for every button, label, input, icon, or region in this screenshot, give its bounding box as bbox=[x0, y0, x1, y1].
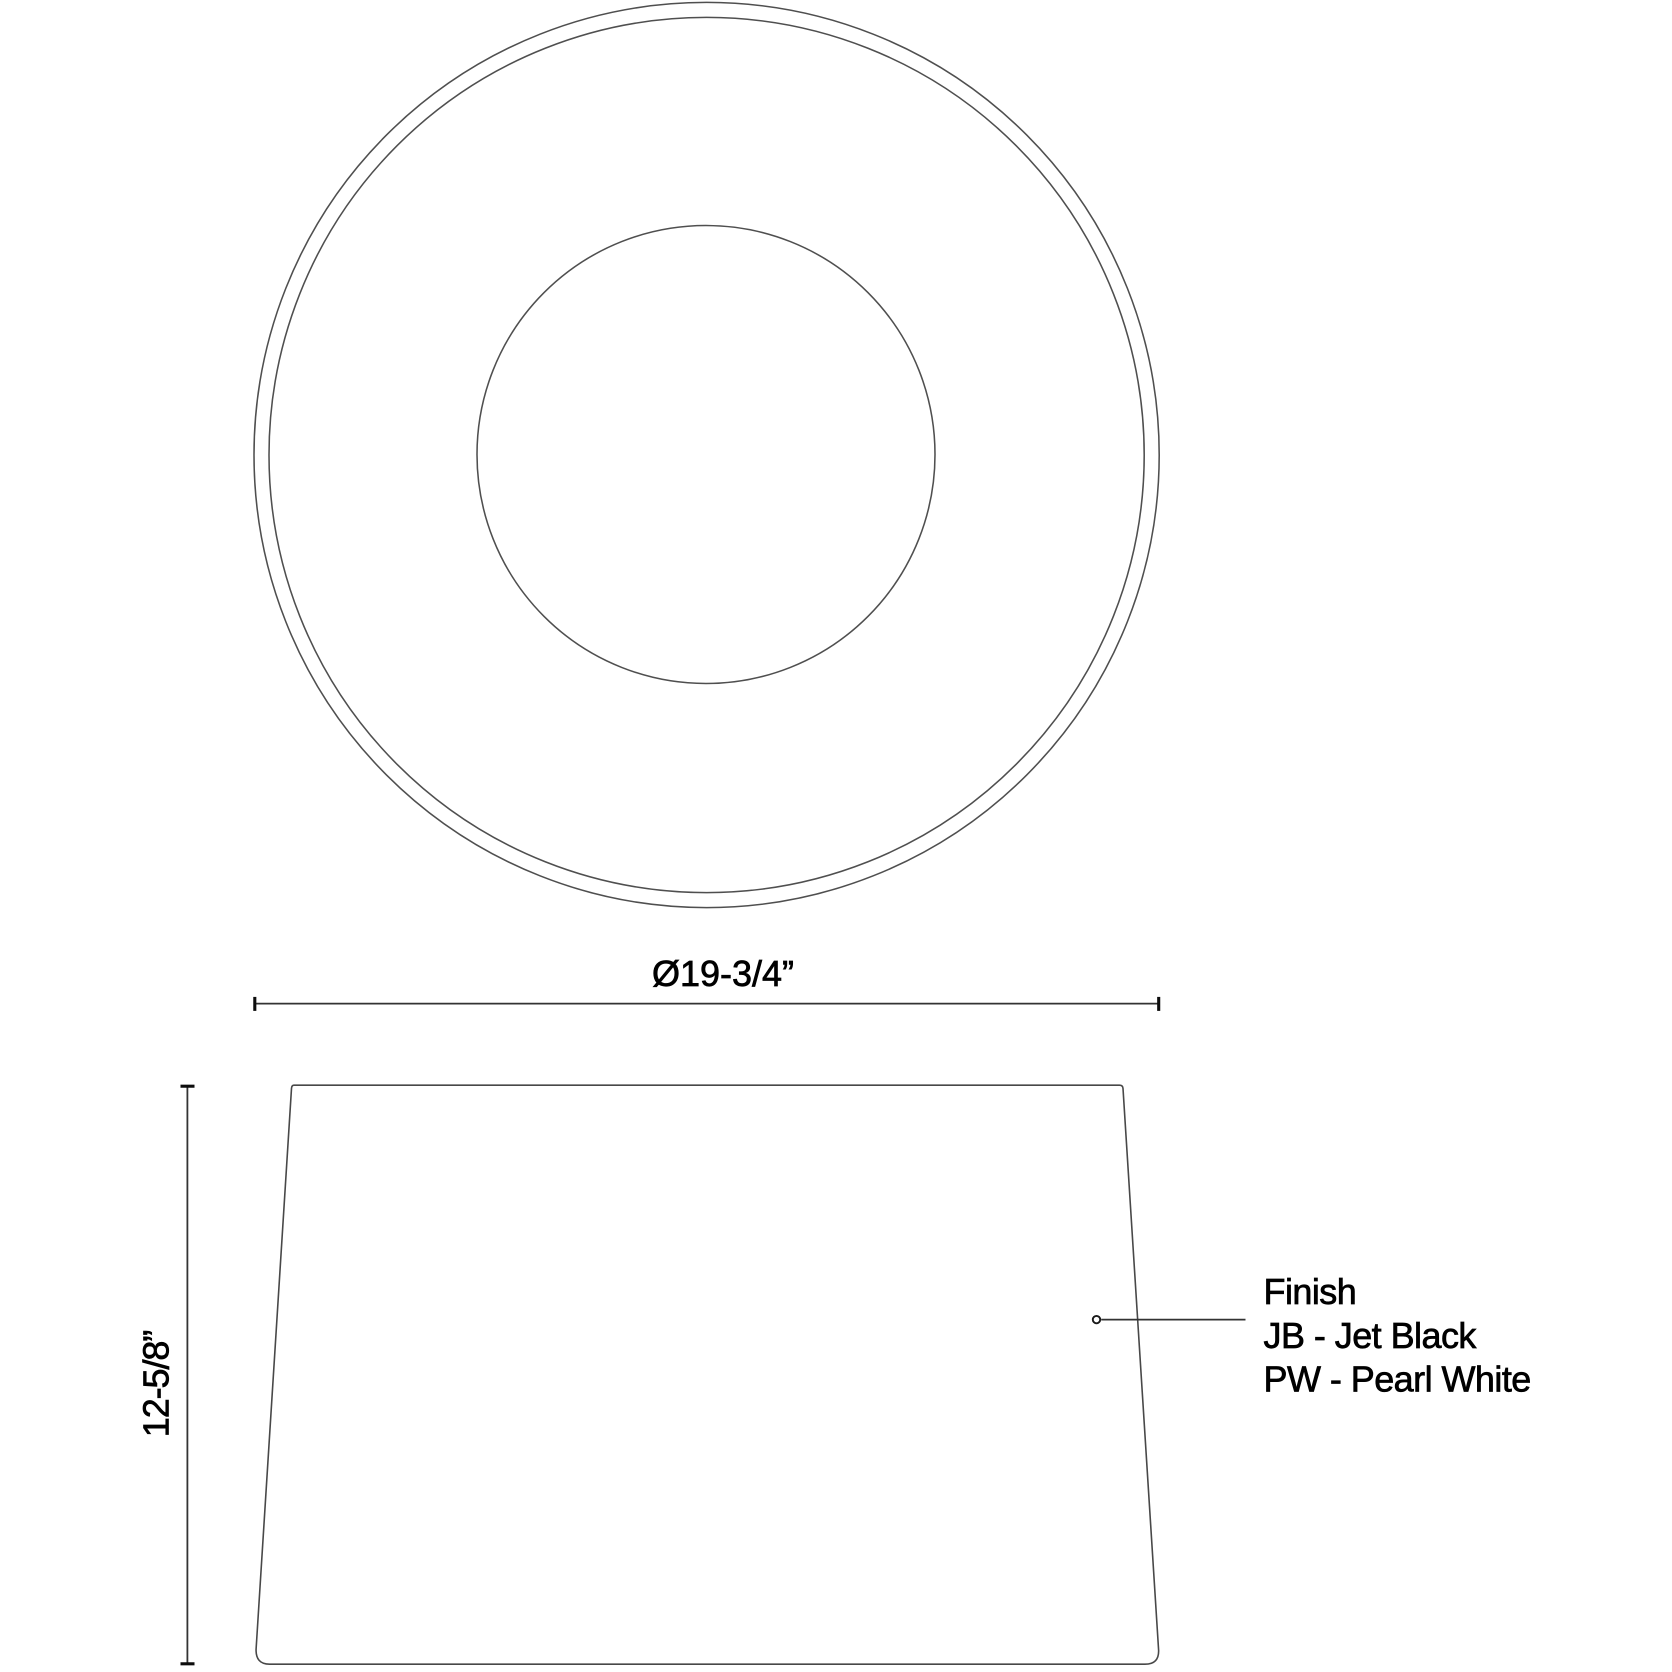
svg-text:Finish: Finish bbox=[1264, 1271, 1357, 1312]
svg-text:JB - Jet Black: JB - Jet Black bbox=[1264, 1315, 1478, 1356]
svg-text:PW - Pearl White: PW - Pearl White bbox=[1264, 1358, 1531, 1399]
svg-text:12-5/8”: 12-5/8” bbox=[136, 1331, 177, 1437]
svg-text:Ø19-3/4”: Ø19-3/4” bbox=[652, 953, 794, 994]
